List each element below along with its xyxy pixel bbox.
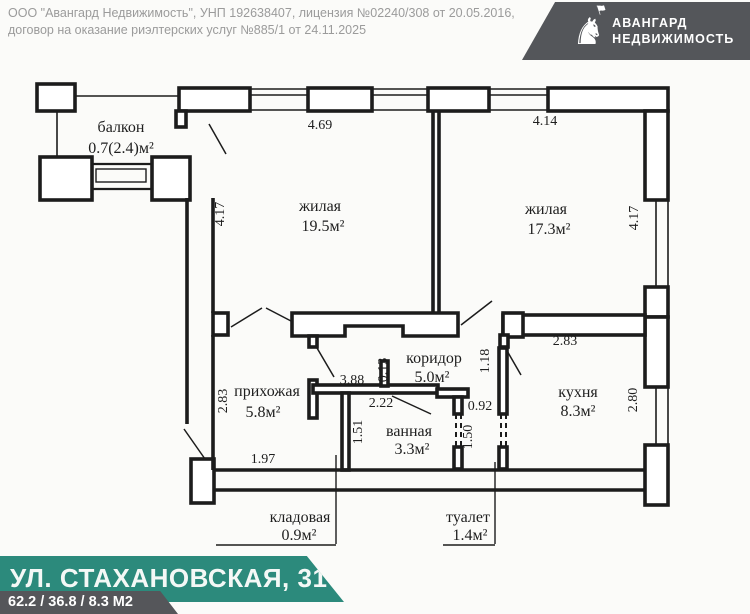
dim-living2-width: 4.14	[533, 114, 558, 130]
room-label-corridor: коридор	[406, 350, 462, 368]
dim-toilet-offset: 1.18	[478, 349, 494, 374]
dim-kitchen-width: 2.83	[553, 334, 578, 350]
areas-summary-strip: 62.2 / 36.8 / 8.3 М2	[0, 591, 178, 614]
knight-logo-icon: ♞	[572, 13, 605, 50]
brand-line-1: АВАНГАРД	[612, 16, 687, 30]
dim-living2-depth: 4.17	[627, 206, 643, 231]
room-label-toilet: туалет	[446, 509, 490, 527]
brand-logo: ⚑ ♞ АВАНГАРД НЕДВИЖИМОСТЬ	[522, 2, 750, 60]
room-area-toilet: 1.4м²	[453, 527, 488, 545]
room-label-hallway: прихожая	[234, 383, 300, 401]
disclaimer-text: ООО "Авангард Недвижимость", УНП 1926384…	[8, 5, 553, 38]
dim-bathroom-depth: 1.51	[351, 420, 367, 445]
brand-name: АВАНГАРД НЕДВИЖИМОСТЬ	[612, 15, 734, 48]
room-label-bathroom: ванная	[386, 423, 432, 441]
room-area-bathroom: 3.3м²	[395, 441, 430, 459]
room-area-storage: 0.9м²	[282, 527, 317, 545]
room-label-balcony: балкон	[98, 119, 145, 137]
room-label-kitchen: кухня	[558, 384, 597, 402]
room-area-kitchen: 8.3м²	[561, 403, 596, 421]
room-label-living1: жилая	[299, 198, 341, 216]
room-label-living2: жилая	[525, 201, 567, 219]
address-text: УЛ. СТАХАНОВСКАЯ, 31	[10, 563, 327, 593]
dim-living1-depth: 4.17	[213, 202, 229, 227]
dim-hallway-depth: 2.83	[216, 389, 232, 414]
dim-toilet-width: 0.92	[468, 399, 493, 415]
dim-corridor-width: 3.88	[340, 373, 365, 389]
dim-living1-width: 4.69	[308, 118, 333, 134]
dim-kitchen-depth: 2.80	[626, 388, 642, 413]
areas-summary-text: 62.2 / 36.8 / 8.3 М2	[8, 594, 133, 610]
room-area-corridor: 5.0м²	[415, 369, 450, 387]
room-area-balcony: 0.7(2.4)м²	[88, 140, 154, 158]
room-area-living1: 19.5м²	[302, 218, 345, 236]
dim-toilet-depth: 1.50	[461, 425, 477, 450]
dim-corridor-step: 0.13	[376, 358, 392, 383]
disclaimer-line-1: ООО "Авангард Недвижимость", УНП 1926384…	[8, 5, 553, 22]
floor-plan-drawing	[0, 0, 750, 614]
dim-bathroom-width: 2.22	[369, 396, 394, 412]
disclaimer-line-2: договор на оказание риэлтерских услуг №8…	[8, 22, 553, 39]
room-area-hallway: 5.8м²	[246, 404, 281, 422]
brand-line-2: НЕДВИЖИМОСТЬ	[612, 32, 734, 46]
room-area-living2: 17.3м²	[528, 221, 571, 239]
room-label-storage: кладовая	[270, 509, 331, 527]
real-estate-flyer: ООО "Авангард Недвижимость", УНП 1926384…	[0, 0, 750, 614]
dim-hallway-width: 1.97	[251, 452, 276, 468]
